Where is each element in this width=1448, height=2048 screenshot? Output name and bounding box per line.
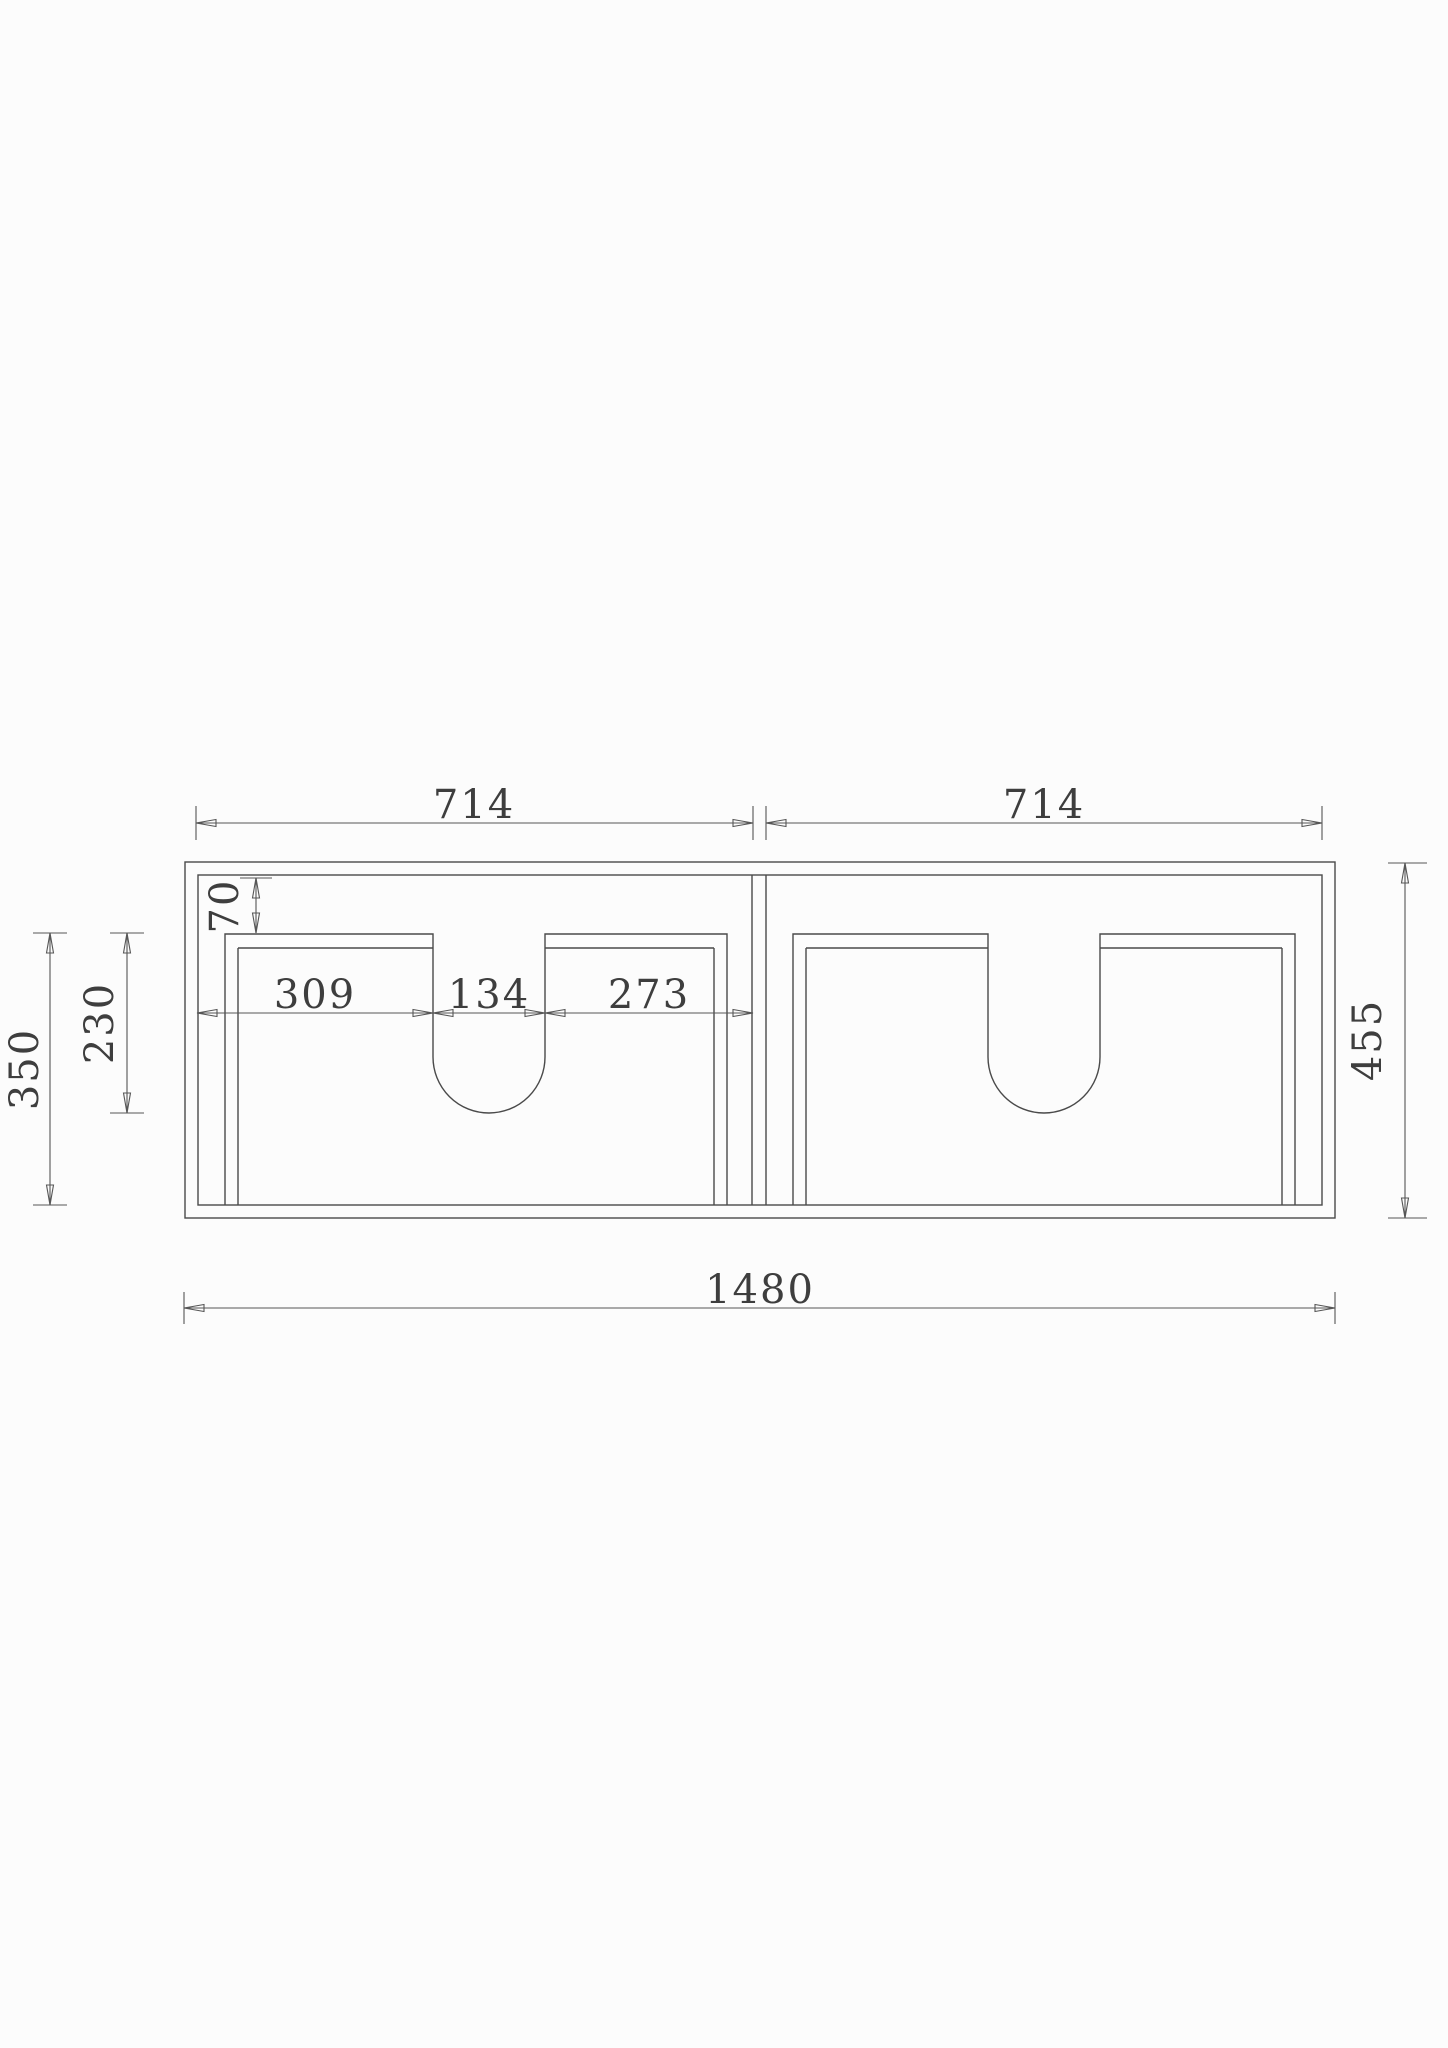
- dim-label-overall-height: 455: [1345, 999, 1391, 1081]
- cabinet-carcass: [185, 862, 1335, 1218]
- dim-chain-309-134-273: 309 134 273: [197, 972, 753, 1018]
- dim-label-overall-width: 1480: [705, 1267, 815, 1313]
- dim-label-chain-right: 273: [608, 972, 690, 1018]
- drawing-page: 714 714 455 350: [0, 0, 1448, 2048]
- dim-label-door-height: 350: [2, 1028, 48, 1110]
- dim-bottom-1480: 1480: [184, 1267, 1335, 1324]
- dim-label-top-right: 714: [1003, 782, 1085, 828]
- dim-label-chain-cutout: 134: [448, 972, 530, 1018]
- right-door: [793, 934, 1295, 1205]
- dim-left-230: 230: [77, 933, 144, 1113]
- carcass-inner-edge: [198, 875, 1322, 1205]
- dim-label-chain-left: 309: [274, 972, 356, 1018]
- dim-right-455: 455: [1345, 863, 1427, 1218]
- dim-label-top-left: 714: [433, 782, 515, 828]
- right-door-outline: [793, 934, 1295, 1205]
- dim-top-right-714: 714: [766, 782, 1322, 840]
- dim-label-cutout-depth: 230: [77, 982, 123, 1064]
- dim-inset-70: 70: [202, 878, 272, 933]
- dim-top-left-714: 714: [196, 782, 753, 840]
- dim-left-350: 350: [2, 933, 67, 1205]
- cabinet-elevation-drawing: 714 714 455 350: [0, 0, 1448, 2048]
- carcass-outer-edge: [185, 862, 1335, 1218]
- dim-label-top-inset: 70: [202, 879, 248, 934]
